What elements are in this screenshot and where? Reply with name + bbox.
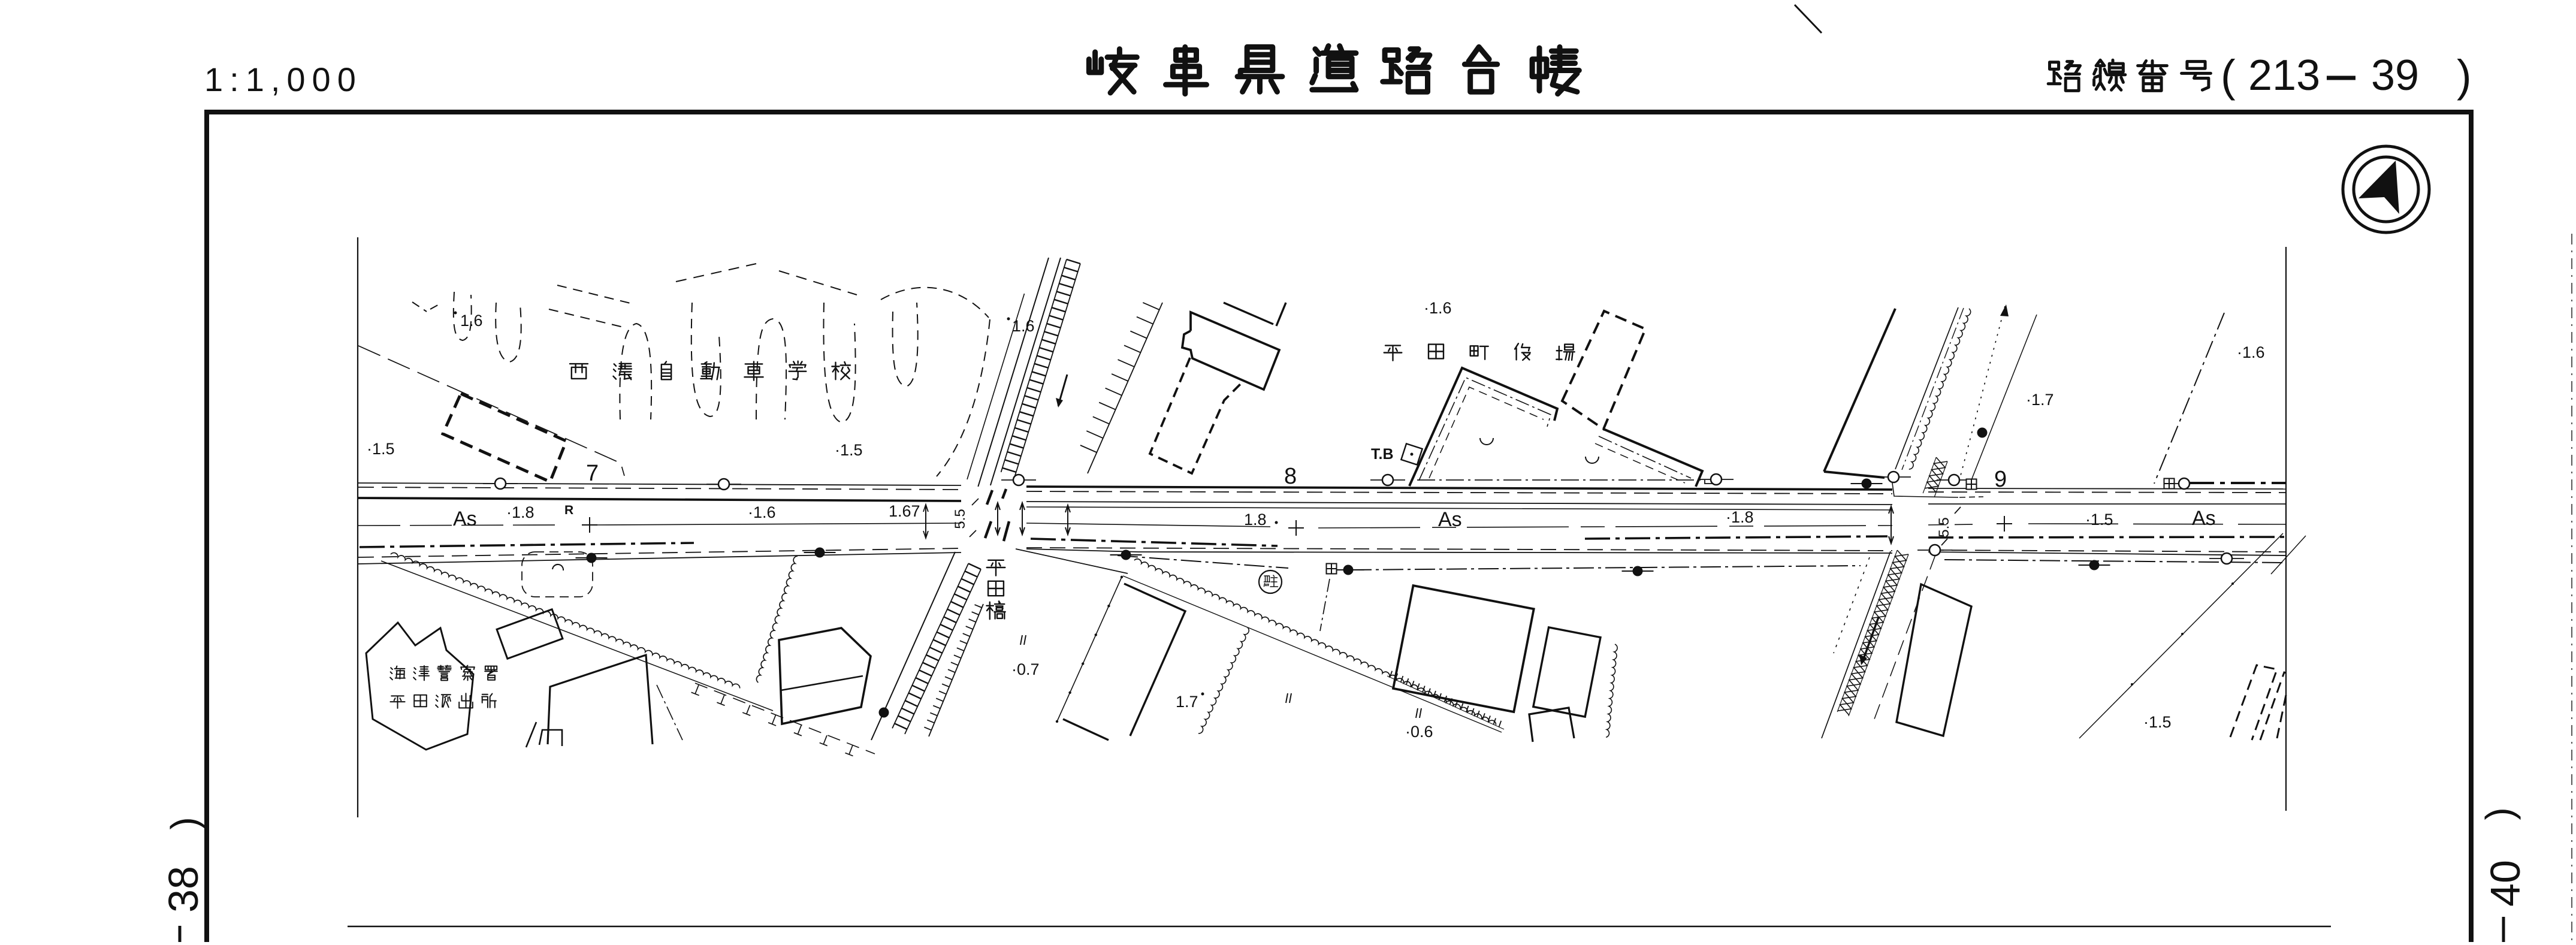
svg-text:5.5: 5.5 (1936, 517, 1952, 537)
svg-text:40: 40 (2482, 860, 2529, 907)
svg-text:1.8: 1.8 (1244, 511, 1267, 529)
svg-text:As: As (1438, 508, 1462, 531)
svg-text:R: R (564, 503, 573, 517)
svg-text:·1.5: ·1.5 (835, 441, 863, 459)
svg-text:5.5: 5.5 (952, 509, 968, 529)
svg-text:39: 39 (2371, 52, 2419, 99)
svg-text:·1.7: ·1.7 (2026, 391, 2054, 409)
svg-text:·0.7: ·0.7 (1011, 660, 1040, 678)
svg-text:·1.6: ·1.6 (1424, 299, 1452, 317)
svg-text:213: 213 (2248, 52, 2320, 99)
svg-text:·1.8: ·1.8 (1726, 508, 1754, 526)
svg-text:1.7: 1.7 (1176, 693, 1198, 711)
svg-text:·1.5: ·1.5 (367, 440, 395, 458)
svg-text:1:1,000: 1:1,000 (204, 61, 363, 98)
svg-text:1.6: 1.6 (460, 312, 483, 330)
svg-text:T.B: T.B (1371, 446, 1394, 463)
svg-text:): ) (2457, 51, 2472, 101)
svg-text:38: 38 (160, 866, 207, 913)
svg-text:·0.6: ·0.6 (1405, 723, 1433, 741)
svg-text:(: ( (2221, 51, 2236, 101)
svg-text:9: 9 (1994, 467, 2007, 492)
svg-text:As: As (2192, 507, 2216, 530)
svg-text:1.67: 1.67 (889, 502, 920, 520)
svg-text:8: 8 (1284, 464, 1297, 489)
svg-text:): ) (2478, 807, 2521, 820)
svg-text:·1.5: ·1.5 (2085, 511, 2113, 529)
svg-text:): ) (163, 817, 206, 829)
svg-text:·1.8: ·1.8 (506, 503, 534, 521)
svg-text:7: 7 (586, 461, 599, 486)
svg-text:1.6: 1.6 (1012, 317, 1035, 335)
svg-text:·1.6: ·1.6 (2237, 343, 2265, 361)
svg-text:As: As (453, 508, 477, 530)
svg-text:·1.5: ·1.5 (2143, 713, 2172, 731)
svg-text:·1.6: ·1.6 (748, 503, 776, 521)
